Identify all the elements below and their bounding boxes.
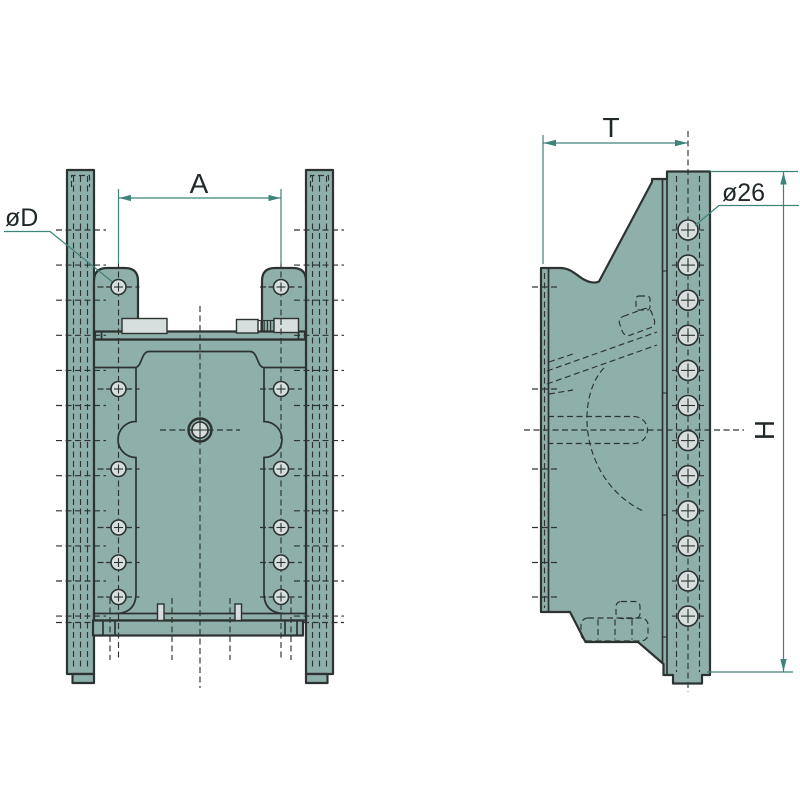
dim-label-a: A (190, 168, 209, 199)
dim-label-h-wrap: H (749, 420, 780, 440)
clamp-block-left (122, 319, 167, 334)
technical-drawing-page: A øD (0, 0, 800, 800)
bolt-head (274, 319, 299, 333)
plate-bottom-flange (93, 621, 303, 636)
dim-label-26: ø26 (722, 179, 765, 207)
bottom-tab-right (235, 604, 242, 621)
right-rail-foot (306, 674, 328, 683)
technical-drawing: A øD (0, 0, 800, 800)
bottom-tab-left (158, 604, 165, 621)
left-rail-foot (73, 674, 95, 683)
dim-label-h: H (749, 420, 780, 440)
dim-label-t: T (602, 112, 619, 143)
dim-label-d: øD (5, 204, 38, 232)
clamp-block-right (237, 320, 259, 334)
